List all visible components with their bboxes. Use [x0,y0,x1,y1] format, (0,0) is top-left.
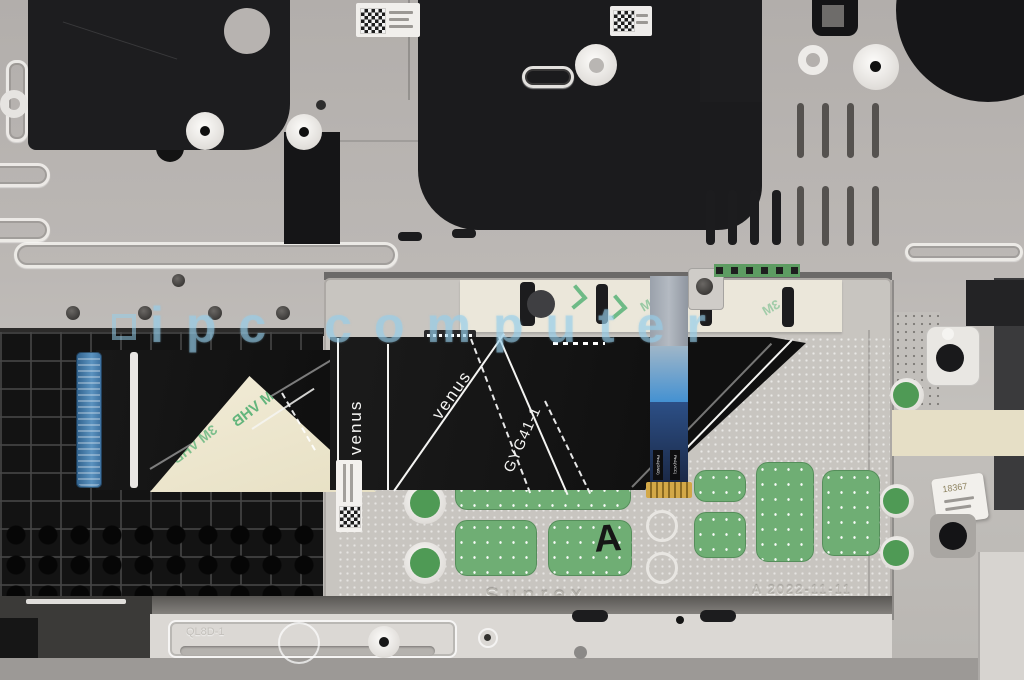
lip-slot [572,610,608,622]
vent-slot [822,186,829,246]
green-dot-sticker [883,488,909,514]
vent-slot [797,186,804,246]
emboss-capsule [522,66,574,88]
watermark-text: ipc computer [150,296,1024,354]
qr-label [610,6,652,36]
black-circle-top-right [896,0,1024,102]
metal-hole-small [316,100,326,110]
waffle-dark-cells [0,520,323,598]
lip-circle-outline [278,622,320,664]
pin1-vcc-label: Pin1(VCC) [670,450,680,480]
membrane-pad [455,520,537,576]
label-text-line [945,505,971,512]
dome-green [410,488,440,518]
touchpad-ffc-blue [650,346,688,404]
panel-tooth [750,190,759,245]
lip-boss-center [379,637,389,647]
slot-dash [452,229,476,238]
bright-sliver [26,599,126,604]
label-text-line [350,464,353,502]
dome-outline [646,552,678,584]
label-text-line [944,496,974,503]
label-text-line [389,18,409,21]
gold-contact-fingers [646,482,692,498]
cable-vline [387,344,389,490]
screw-boss-center [870,61,881,72]
vent-slot [872,103,879,158]
bracket-screw [696,278,713,295]
standoff-ring [0,90,28,118]
screw-boss-center [200,126,210,136]
tape-band-right [892,410,1024,456]
grade-mark: A [593,517,623,562]
lip-marking: QL8D-1 [186,626,225,638]
right-lip-strip [978,552,1024,680]
ffc-white-bar [130,352,138,488]
pcb-edge-components [716,267,798,274]
membrane-pad [822,470,880,556]
side-qr-label [336,460,362,532]
emboss-ridge-long [14,242,398,268]
vent-slot [797,103,804,158]
watermark-logo-icon [112,314,136,340]
label-text-line [636,21,648,24]
qr-label [356,3,420,37]
screw-boss-center [299,127,309,137]
label-text-line [343,464,346,502]
panel-tooth [706,190,715,245]
label-code: 18367 [942,481,968,494]
green-dot-sticker [883,540,909,566]
black-patch [284,132,340,244]
membrane-pad [756,462,814,562]
lip-dot [676,616,684,624]
slot-dash [398,232,422,241]
screw [172,274,185,287]
emboss-capsule-left-2 [0,218,50,242]
vent-slot [847,103,854,158]
screw-boss-center [589,58,604,73]
cable-marking-venus-vertical: venus [346,400,366,455]
vent-slot [822,103,829,158]
qr-code-icon [339,506,361,528]
emboss-capsule-left-1 [0,163,50,187]
qr-code-icon [360,8,386,34]
pin1-gnd-label: Pin1(GND) [653,450,663,480]
ffc-connector-stripes [78,354,100,486]
panel-tooth [728,190,737,245]
green-dot-sticker [893,382,919,408]
photo-canvas: 3M 3M A Sunrex A 2022-11-11 3M VHB 3M VH… [0,0,1024,680]
lip-dot-gray [574,646,587,659]
standoff-ring [798,45,828,75]
screw [66,306,80,320]
label-text-line [389,25,413,28]
sheet-notch [224,8,270,54]
panel-tooth [772,190,781,245]
label-text-line [389,11,413,14]
vent-slot [847,186,854,246]
label-text-line [636,14,648,17]
membrane-pad [694,470,746,502]
lip-dot-small [484,634,491,641]
tab-window [822,5,844,27]
rubber-grommet [939,522,967,550]
bottom-band [0,658,1024,680]
black-sheet-extension [700,0,762,102]
lip-slot [700,610,736,622]
emboss-ridge-right [905,243,1023,261]
vent-slot [872,186,879,246]
pcb-edge-strip [714,264,800,277]
dome-green [410,548,440,578]
touchpad-date-code: A 2022-11-11 [752,582,852,597]
membrane-pad [694,512,746,558]
dome-outline [646,510,678,542]
qr-code-icon [613,10,635,32]
